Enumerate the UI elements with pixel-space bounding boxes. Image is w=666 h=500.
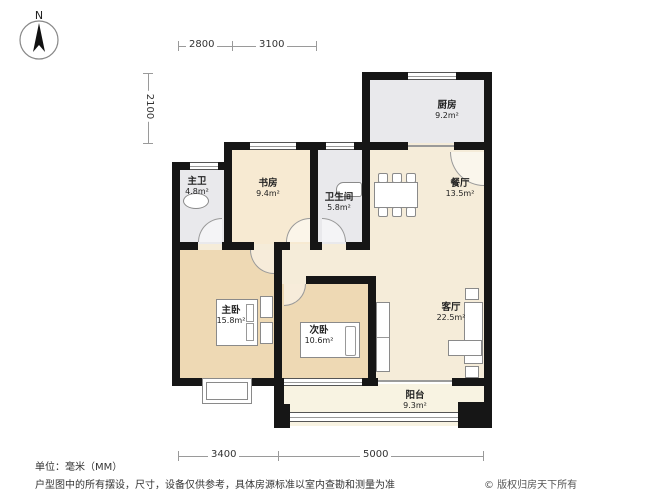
kitchen-floor bbox=[370, 80, 484, 144]
single-bed bbox=[300, 322, 360, 358]
sliding-door-opening bbox=[378, 380, 452, 382]
wardrobe bbox=[376, 302, 390, 372]
bath-fixture bbox=[336, 182, 362, 197]
dim-tick bbox=[278, 451, 279, 461]
dim-bottom-2: 5000 bbox=[360, 449, 391, 460]
wall bbox=[362, 142, 408, 150]
floor-plan-page: { "compass": { "label": "N" }, "dimensio… bbox=[0, 0, 666, 500]
dining-chair bbox=[378, 207, 388, 217]
north-compass: N bbox=[12, 6, 66, 64]
dining-chair bbox=[378, 173, 388, 183]
dining-chair bbox=[392, 207, 402, 217]
dim-left-1: 2100 bbox=[144, 91, 155, 122]
dining-chair bbox=[406, 207, 416, 217]
wall bbox=[172, 162, 180, 386]
window bbox=[284, 378, 362, 386]
side-table bbox=[465, 288, 479, 300]
dim-tick bbox=[316, 41, 317, 51]
dim-bottom-1: 3400 bbox=[208, 449, 239, 460]
unit-note: 单位：毫米（MM） bbox=[35, 458, 122, 473]
basin bbox=[183, 193, 209, 209]
wall bbox=[454, 142, 492, 150]
wall bbox=[484, 72, 492, 406]
wall bbox=[274, 404, 290, 428]
dim-top-2: 3100 bbox=[256, 39, 287, 50]
wall bbox=[362, 378, 378, 386]
wall bbox=[224, 142, 232, 250]
compass-n-label: N bbox=[35, 9, 43, 22]
dining-table bbox=[374, 182, 418, 208]
dim-top-1: 2800 bbox=[186, 39, 217, 50]
dim-tick bbox=[143, 143, 153, 144]
kitchen-pass-opening bbox=[408, 145, 454, 147]
window bbox=[190, 162, 218, 170]
wall bbox=[172, 378, 204, 386]
wall bbox=[312, 242, 322, 250]
disclaimer-text: 户型图中的所有摆设，尺寸，设备仅供参考，具体房源标准以室内查勘和测量为准 bbox=[35, 476, 395, 491]
wall bbox=[306, 276, 372, 284]
window bbox=[408, 72, 456, 80]
copyright-text: © 版权归房天下所有 bbox=[484, 476, 577, 491]
wall bbox=[274, 242, 282, 386]
wall bbox=[310, 148, 318, 250]
window bbox=[250, 142, 296, 150]
dim-tick bbox=[232, 41, 233, 51]
wall bbox=[346, 242, 370, 250]
window bbox=[326, 142, 354, 150]
wall bbox=[172, 242, 198, 250]
coffee-table bbox=[448, 340, 482, 356]
nightstand bbox=[260, 296, 273, 318]
wall bbox=[368, 276, 376, 386]
dim-tick bbox=[178, 41, 179, 51]
bay-window bbox=[202, 378, 252, 404]
dining-chair bbox=[392, 173, 402, 183]
nightstand bbox=[260, 322, 273, 344]
dim-tick bbox=[143, 73, 153, 74]
wall bbox=[222, 242, 254, 250]
dim-tick bbox=[178, 451, 179, 461]
double-bed bbox=[216, 299, 258, 346]
balcony-window bbox=[290, 412, 458, 422]
wall bbox=[452, 378, 492, 386]
dining-chair bbox=[406, 173, 416, 183]
dim-tick bbox=[483, 451, 484, 461]
wall bbox=[458, 402, 492, 428]
wall bbox=[362, 72, 370, 250]
north-arrow-icon: N bbox=[12, 6, 66, 64]
side-table bbox=[465, 366, 479, 378]
